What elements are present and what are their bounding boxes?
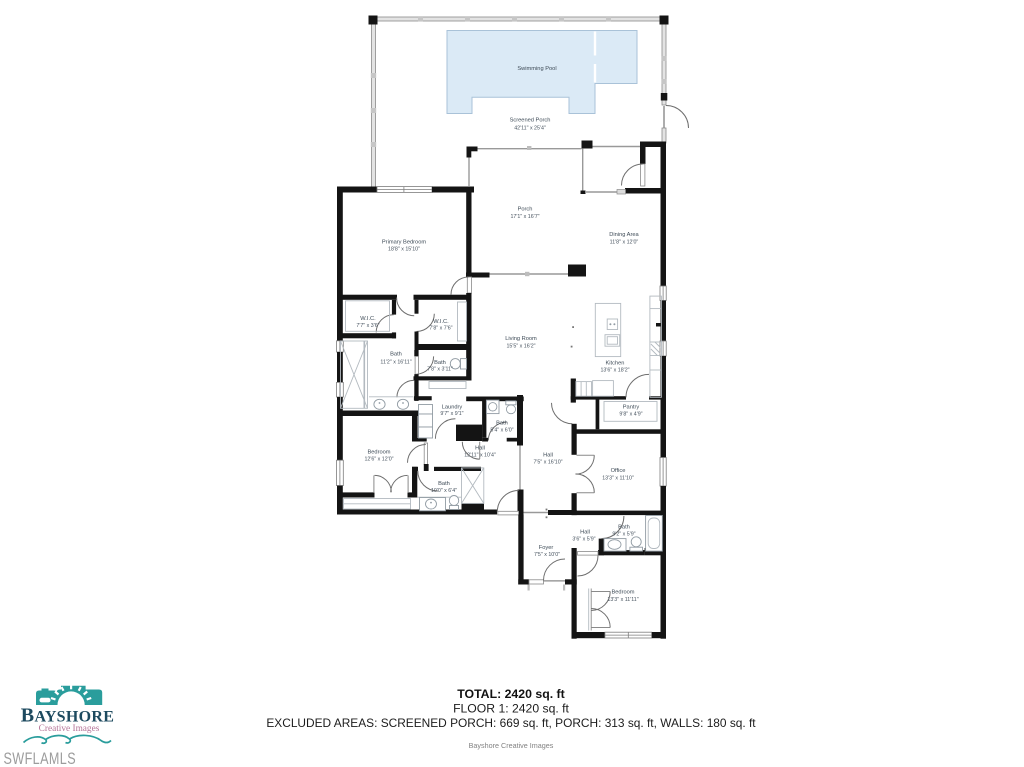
svg-text:9'2" x 5'9": 9'2" x 5'9" (612, 532, 635, 538)
svg-text:Office: Office (611, 468, 626, 474)
svg-text:7'7" x 3'6": 7'7" x 3'6" (356, 323, 379, 329)
svg-text:12'6" x 12'0": 12'6" x 12'0" (364, 457, 393, 463)
svg-text:18'8" x 15'10": 18'8" x 15'10" (388, 247, 420, 253)
svg-text:13'3" x 11'11": 13'3" x 11'11" (607, 597, 638, 603)
svg-text:Bath: Bath (438, 481, 450, 487)
svg-text:7'8" x 7'6": 7'8" x 7'6" (429, 326, 452, 332)
svg-text:11'2" x 16'11": 11'2" x 16'11" (380, 360, 411, 366)
svg-text:Bath: Bath (496, 421, 508, 427)
svg-text:12'11" x 10'4": 12'11" x 10'4" (464, 453, 496, 459)
svg-text:Bath: Bath (434, 360, 446, 366)
svg-text:9'7" x 9'1": 9'7" x 9'1" (440, 411, 463, 417)
svg-text:3'6" x 5'9": 3'6" x 5'9" (572, 537, 595, 543)
svg-text:17'1" x 16'7": 17'1" x 16'7" (510, 214, 539, 220)
svg-text:W.I.C.: W.I.C. (360, 316, 376, 322)
svg-text:Foyer: Foyer (539, 545, 554, 551)
svg-text:42'11" x 25'4": 42'11" x 25'4" (514, 126, 546, 132)
svg-text:Hall: Hall (475, 446, 485, 452)
svg-text:Dining Area: Dining Area (609, 232, 639, 238)
svg-text:5'4" x 6'0": 5'4" x 6'0" (490, 428, 513, 434)
svg-text:Living Room: Living Room (505, 336, 537, 342)
svg-text:FLOOR 1: 2420 sq. ft: FLOOR 1: 2420 sq. ft (453, 702, 569, 716)
svg-text:Swimming Pool: Swimming Pool (517, 66, 556, 72)
svg-text:13'3" x 11'10": 13'3" x 11'10" (602, 476, 634, 482)
svg-text:10'0" x 6'4": 10'0" x 6'4" (431, 488, 457, 494)
svg-text:Laundry: Laundry (442, 405, 463, 411)
svg-text:7'5" x 10'0": 7'5" x 10'0" (534, 552, 560, 558)
svg-text:SWFLAMLS: SWFLAMLS (4, 750, 76, 767)
svg-text:Screened Porch: Screened Porch (510, 118, 551, 124)
svg-text:TOTAL: 2420 sq. ft: TOTAL: 2420 sq. ft (457, 687, 565, 701)
svg-text:Kitchen: Kitchen (606, 361, 625, 367)
svg-text:Bath: Bath (390, 352, 402, 358)
svg-text:7'8" x 3'11": 7'8" x 3'11" (427, 367, 453, 373)
svg-text:13'6" x 18'2": 13'6" x 18'2" (600, 368, 629, 374)
svg-text:Bath: Bath (618, 525, 630, 531)
svg-text:9'8" x 4'9": 9'8" x 4'9" (619, 412, 642, 418)
svg-text:Hall: Hall (580, 530, 590, 536)
svg-text:15'5" x 16'2": 15'5" x 16'2" (506, 344, 535, 350)
svg-text:W.I.C.: W.I.C. (433, 319, 449, 325)
svg-text:Bayshore Creative Images: Bayshore Creative Images (469, 741, 554, 750)
svg-text:Bedroom: Bedroom (367, 450, 390, 456)
svg-text:7'5" x 16'10": 7'5" x 16'10" (533, 460, 562, 466)
svg-text:Bedroom: Bedroom (611, 590, 634, 596)
svg-text:Pantry: Pantry (623, 405, 640, 411)
svg-text:Primary Bedroom: Primary Bedroom (382, 240, 427, 246)
svg-text:EXCLUDED AREAS: SCREENED PORCH: EXCLUDED AREAS: SCREENED PORCH: 669 sq. … (266, 716, 756, 730)
svg-text:Porch: Porch (518, 207, 533, 213)
svg-text:Hall: Hall (543, 453, 553, 459)
svg-text:Creative Images: Creative Images (39, 724, 100, 734)
svg-text:11'8" x 12'0": 11'8" x 12'0" (610, 240, 639, 246)
